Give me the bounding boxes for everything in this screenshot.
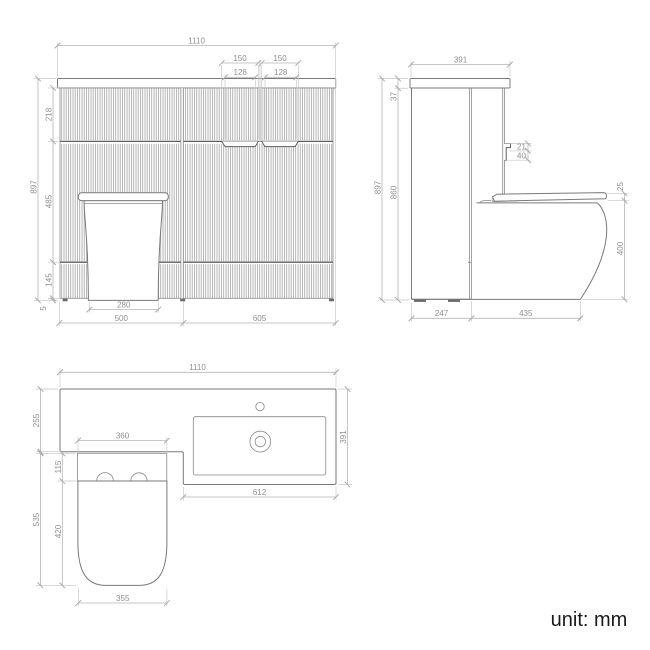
dim-side-pan-projection: 435: [519, 309, 533, 318]
dim-side-handle-lower: 40: [517, 152, 526, 161]
dim-front-handle-right-outer: 150: [273, 54, 287, 63]
dim-side-cabinet-height: 860: [390, 185, 399, 199]
plan-seat-hinges: [97, 473, 148, 481]
dim-side-seat-thickness: 25: [616, 182, 625, 191]
plan-worktop-outline: [60, 389, 336, 485]
dim-plan-basin-section-width: 612: [253, 488, 267, 497]
side-toilet-seat: [493, 193, 607, 202]
dim-side-worktop-thickness: 37: [390, 92, 399, 101]
dim-front-total-height: 897: [30, 180, 39, 194]
front-toilet: [78, 193, 168, 301]
side-elevation-view: 391 897 37 860 21 40 25 400 247 435: [374, 55, 629, 321]
dim-front-floor-gap: 5: [39, 306, 48, 311]
side-handle-profile: [505, 144, 511, 161]
side-worktop: [410, 79, 510, 89]
dim-front-wc-section-width: 500: [115, 314, 129, 323]
front-right-drawer-handle: [262, 141, 299, 146]
front-left-drawer-handle: [222, 141, 259, 146]
dim-side-total-height: 897: [374, 180, 383, 194]
front-elevation-view: 1110 150 150 128 128 897 218 485 145 5 2…: [30, 36, 336, 326]
dim-front-top-drawer-height: 218: [45, 107, 54, 121]
front-toilet-seat: [78, 193, 168, 201]
side-toilet: [477, 193, 607, 300]
side-toilet-pan-curve: [580, 203, 606, 299]
dim-front-middle-section-height: 485: [45, 194, 54, 208]
dim-plan-wc-total-depth: 535: [32, 512, 41, 526]
dim-side-worktop-depth: 391: [454, 55, 468, 64]
dimension-drawing-page: 1110 150 150 128 128 897 218 485 145 5 2…: [0, 0, 650, 650]
plan-cistern-ledge: [78, 453, 167, 481]
technical-drawing: 1110 150 150 128 128 897 218 485 145 5 2…: [0, 0, 650, 650]
dim-front-handle-left-outer: 150: [233, 54, 247, 63]
dim-front-handle-right-inner: 128: [274, 68, 288, 77]
plan-toilet-seat: [78, 481, 167, 585]
dim-front-plinth-height: 145: [45, 273, 54, 287]
front-toilet-pan: [84, 201, 162, 301]
unit-label: unit: mm: [551, 609, 628, 631]
dim-side-cabinet-depth: 247: [435, 309, 449, 318]
dim-plan-seat-depth: 420: [54, 524, 63, 538]
side-feet: [414, 300, 460, 302]
dim-plan-left-worktop-depth: 255: [32, 413, 41, 427]
dim-front-pan-base-width: 280: [117, 300, 131, 309]
dim-side-handle-upper: 21: [517, 142, 526, 151]
dim-plan-cistern-ledge-depth: 115: [54, 460, 63, 473]
plan-view: 1110 255 391 360 115 535 420 612 355: [32, 363, 352, 606]
side-cabinet: [412, 88, 511, 299]
dim-front-handle-left-inner: 128: [234, 68, 248, 77]
front-worktop: [58, 79, 336, 89]
dim-front-vanity-section-width: 605: [253, 314, 267, 323]
dim-side-pan-height: 400: [616, 241, 625, 255]
dim-plan-right-worktop-depth: 391: [339, 430, 348, 444]
dim-plan-seat-width: 355: [116, 594, 130, 603]
dim-front-total-width: 1110: [188, 36, 205, 45]
dim-plan-total-width: 1110: [189, 363, 206, 372]
dim-plan-wc-unit-width: 360: [116, 431, 130, 440]
